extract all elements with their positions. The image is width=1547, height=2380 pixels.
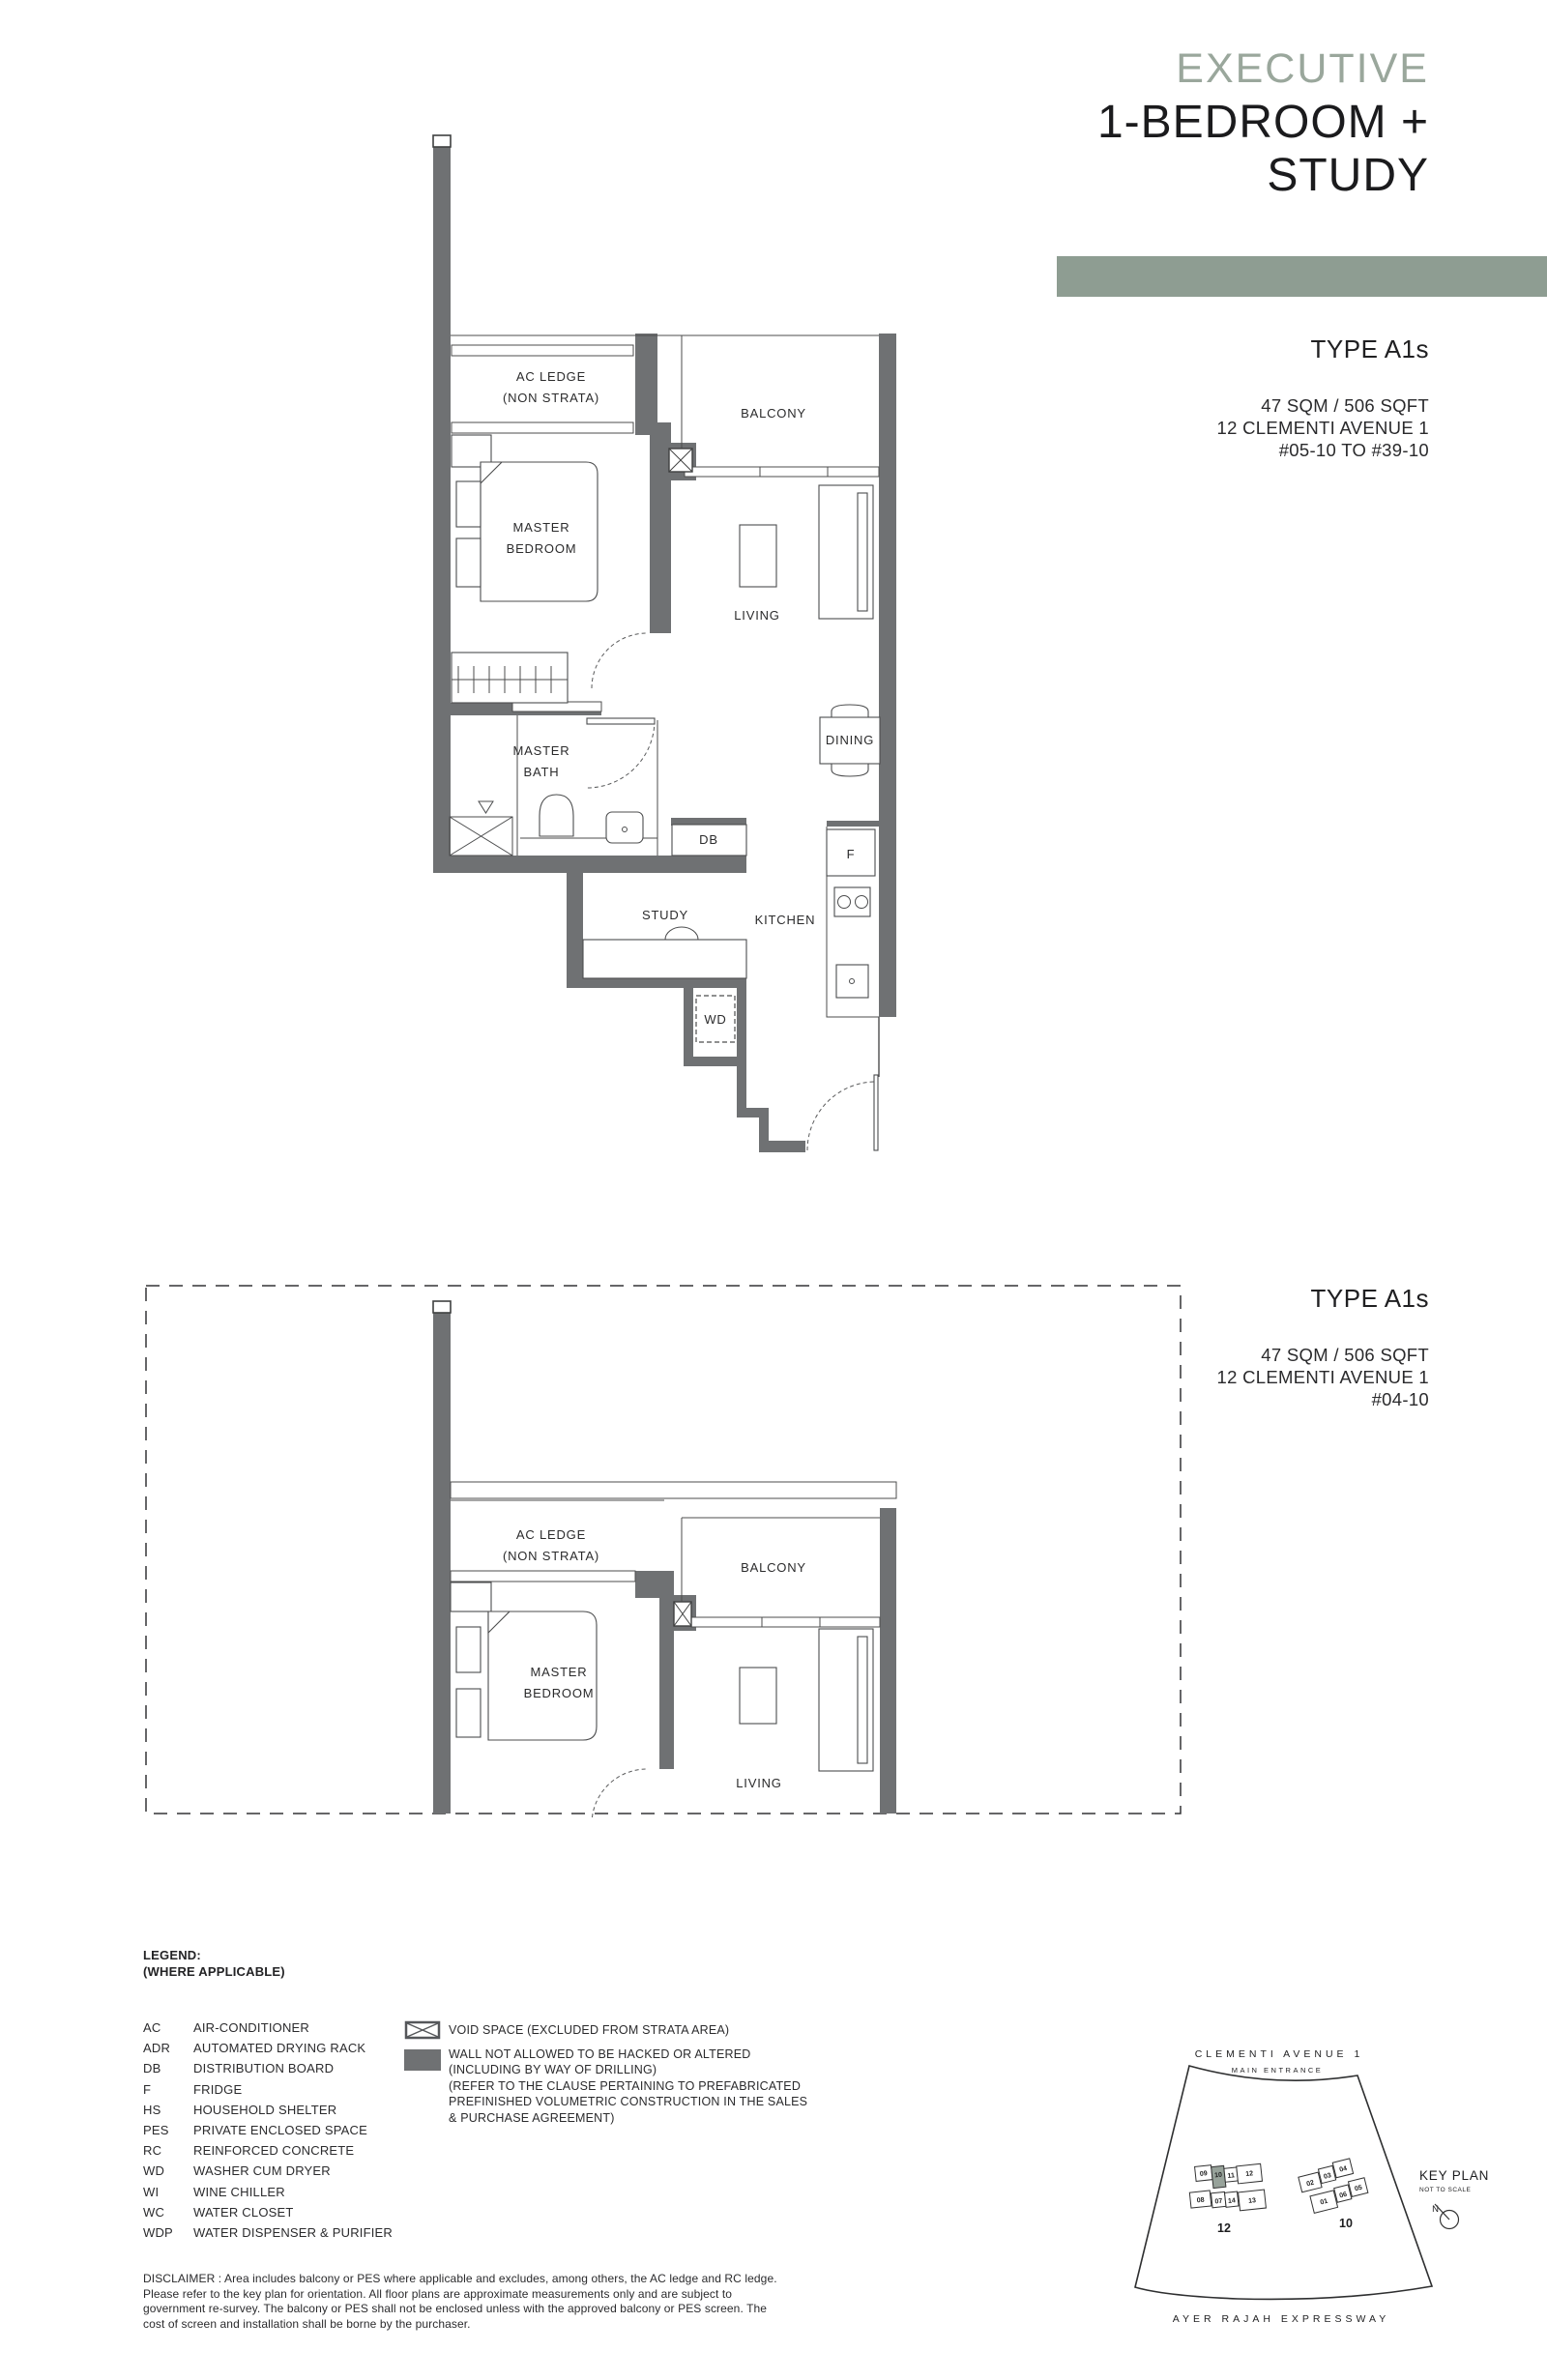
void-space-icon bbox=[404, 2020, 441, 2040]
floorplan-upper: AC LEDGE (NON STRATA) BALCONY MASTER BED… bbox=[422, 128, 897, 1154]
legend-item: PESPRIVATE ENCLOSED SPACE bbox=[143, 2123, 452, 2143]
plan-top-details: 47 SQM / 506 SQFT 12 CLEMENTI AVENUE 1 #… bbox=[994, 394, 1429, 461]
floorplan-page: EXECUTIVE 1-BEDROOM + STUDY TYPE A1s 47 … bbox=[0, 0, 1547, 2380]
dining-chair bbox=[832, 705, 868, 717]
master-bath-fixtures bbox=[450, 718, 655, 856]
master-bedroom-furniture bbox=[452, 435, 647, 703]
unit-type-title-line2: STUDY bbox=[849, 149, 1429, 202]
study-desk bbox=[583, 940, 746, 978]
label-balcony: BALCONY bbox=[741, 1560, 806, 1575]
wall-icon bbox=[404, 2049, 441, 2071]
shower-head bbox=[479, 801, 493, 813]
nightstand bbox=[456, 1689, 481, 1737]
block-10-cluster: 02 03 04 01 06 05 bbox=[1297, 2156, 1369, 2215]
window-master-bedroom bbox=[451, 1571, 635, 1582]
water-closet bbox=[540, 795, 573, 836]
plan-top-area: 47 SQM / 506 SQFT bbox=[994, 394, 1429, 417]
legend-header: LEGEND: (WHERE APPLICABLE) bbox=[143, 1947, 285, 1980]
label-study: STUDY bbox=[642, 908, 688, 922]
key-plan: CLEMENTI AVENUE 1 MAIN ENTRANCE 09 10 11… bbox=[1112, 2025, 1547, 2354]
page-header: EXECUTIVE 1-BEDROOM + STUDY bbox=[849, 43, 1429, 202]
keyplan-road-bottom: AYER RAJAH EXPRESSWAY bbox=[1173, 2313, 1389, 2325]
legend-void-label: VOID SPACE (EXCLUDED FROM STRATA AREA) bbox=[449, 2022, 729, 2038]
window-living-balcony bbox=[685, 467, 879, 477]
legend-item: WIWINE CHILLER bbox=[143, 2185, 452, 2205]
svg-text:09: 09 bbox=[1200, 2170, 1209, 2178]
label-db: DB bbox=[699, 832, 718, 847]
keyplan-main-entrance: MAIN ENTRANCE bbox=[1232, 2066, 1324, 2075]
label-living: LIVING bbox=[736, 1776, 781, 1790]
nightstand bbox=[456, 1627, 481, 1672]
sofa-back bbox=[858, 493, 867, 611]
svg-text:14: 14 bbox=[1228, 2197, 1237, 2205]
label-master-bath-2: BATH bbox=[524, 765, 560, 779]
legend-item: WDPWATER DISPENSER & PURIFIER bbox=[143, 2225, 452, 2246]
window-living-balcony bbox=[691, 1617, 880, 1627]
plan-top-address: 12 CLEMENTI AVENUE 1 bbox=[994, 417, 1429, 439]
wall-end-cap bbox=[433, 1301, 451, 1313]
sofa-back bbox=[858, 1637, 867, 1763]
label-master-bedroom: MASTER bbox=[513, 520, 570, 535]
bath-door-leaf bbox=[587, 718, 655, 724]
bedroom-door-swing bbox=[592, 1769, 647, 1817]
legend-item: WDWASHER CUM DRYER bbox=[143, 2163, 452, 2184]
label-dining: DINING bbox=[826, 733, 874, 747]
label-living: LIVING bbox=[734, 608, 779, 623]
label-master-bedroom-2: BEDROOM bbox=[524, 1686, 595, 1700]
nightstand bbox=[456, 538, 481, 587]
bath-door-swing bbox=[587, 720, 655, 788]
label-ac-ledge-2: (NON STRATA) bbox=[503, 391, 599, 405]
north-label: N bbox=[1432, 2204, 1439, 2215]
wall-end-cap bbox=[433, 135, 451, 147]
column-ledge bbox=[451, 1582, 491, 1611]
north-arrow-icon: N bbox=[1432, 2204, 1458, 2229]
void-space-symbol-upper bbox=[669, 449, 692, 472]
svg-text:10: 10 bbox=[1214, 2172, 1223, 2180]
label-ac-ledge: AC LEDGE bbox=[516, 369, 586, 384]
entry-door-swing bbox=[807, 1082, 876, 1150]
label-fridge: F bbox=[847, 847, 856, 861]
keyplan-title: KEY PLAN bbox=[1419, 2168, 1489, 2183]
disclaimer-text: DISCLAIMER : Area includes balcony or PE… bbox=[143, 2272, 781, 2332]
label-ac-ledge: AC LEDGE bbox=[516, 1527, 586, 1542]
floorplan-lower: AC LEDGE (NON STRATA) BALCONY MASTER BED… bbox=[143, 1282, 1187, 1817]
svg-text:13: 13 bbox=[1248, 2197, 1257, 2205]
unit-type-title-line1: 1-BEDROOM + bbox=[849, 96, 1429, 149]
legend-wall-label: WALL NOT ALLOWED TO BE HACKED OR ALTERED… bbox=[449, 2046, 807, 2126]
keyplan-subtitle: NOT TO SCALE bbox=[1419, 2187, 1471, 2193]
hob bbox=[834, 887, 870, 916]
plan-top-type: TYPE A1s bbox=[1042, 334, 1429, 364]
label-master-bath: MASTER bbox=[513, 743, 570, 758]
svg-text:11: 11 bbox=[1227, 2172, 1235, 2180]
svg-text:08: 08 bbox=[1197, 2197, 1206, 2205]
keyplan-road-top: CLEMENTI AVENUE 1 bbox=[1195, 2048, 1364, 2060]
study-chair bbox=[665, 927, 698, 940]
wardrobe bbox=[452, 653, 568, 703]
legend-void-row: VOID SPACE (EXCLUDED FROM STRATA AREA) bbox=[404, 2020, 729, 2040]
svg-text:12: 12 bbox=[1245, 2170, 1254, 2178]
legend-item: WCWATER CLOSET bbox=[143, 2205, 452, 2225]
bedroom-door-swing bbox=[592, 633, 647, 688]
dining-chair bbox=[832, 764, 868, 776]
series-title: EXECUTIVE bbox=[849, 43, 1429, 96]
window-ac-ledge-top bbox=[452, 345, 633, 356]
label-master-bedroom: MASTER bbox=[531, 1665, 588, 1679]
site-boundary bbox=[1135, 2066, 1432, 2299]
legend-wall-row: WALL NOT ALLOWED TO BE HACKED OR ALTERED… bbox=[404, 2046, 807, 2126]
coffee-table bbox=[740, 1668, 776, 1724]
legend-subtitle: (WHERE APPLICABLE) bbox=[143, 1963, 285, 1980]
kitchen-sink bbox=[836, 965, 868, 998]
accent-bar bbox=[1057, 256, 1547, 297]
legend-title: LEGEND: bbox=[143, 1947, 285, 1963]
slab-band bbox=[451, 1482, 896, 1498]
block-10-label: 10 bbox=[1339, 2217, 1353, 2230]
label-balcony: BALCONY bbox=[741, 406, 806, 421]
nightstand bbox=[456, 481, 481, 527]
entry-door-leaf bbox=[874, 1075, 878, 1150]
label-master-bedroom-2: BEDROOM bbox=[507, 541, 577, 556]
plan-top-stack: #05-10 TO #39-10 bbox=[994, 439, 1429, 461]
label-wd: WD bbox=[704, 1012, 726, 1027]
void-space-symbol-lower bbox=[674, 1602, 691, 1626]
coffee-table bbox=[740, 525, 776, 587]
block-12-label: 12 bbox=[1217, 2221, 1231, 2235]
window-master-bedroom bbox=[452, 422, 633, 433]
legend-item: RCREINFORCED CONCRETE bbox=[143, 2143, 452, 2163]
label-ac-ledge-2: (NON STRATA) bbox=[503, 1549, 599, 1563]
label-kitchen: KITCHEN bbox=[755, 913, 816, 927]
block-12-cluster: 09 10 11 12 08 07 14 13 bbox=[1187, 2160, 1267, 2216]
svg-text:07: 07 bbox=[1214, 2198, 1223, 2206]
